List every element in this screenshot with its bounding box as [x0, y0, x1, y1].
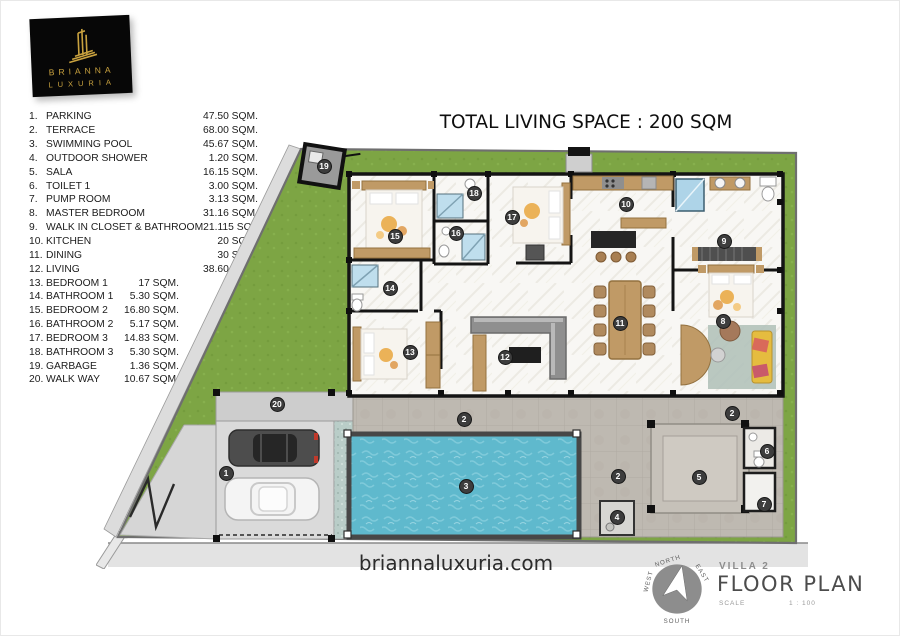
room-marker: 20: [270, 397, 285, 412]
room-marker: 6: [760, 444, 775, 459]
legend-label: WALK WAY: [46, 374, 100, 385]
room-marker: 3: [459, 479, 474, 494]
room-marker: 10: [619, 197, 634, 212]
legend-num: 14.: [29, 291, 46, 302]
legend-num: 11.: [29, 250, 46, 261]
walkway: [216, 392, 353, 421]
legend-num: 6.: [29, 181, 46, 192]
room-marker: 7: [757, 497, 772, 512]
room-marker: 17: [505, 210, 520, 225]
legend-num: 16.: [29, 319, 46, 330]
kitchen-island: [591, 231, 636, 248]
entrance: [566, 147, 592, 172]
scale-label: SCALE: [719, 600, 745, 607]
room-marker: 11: [613, 316, 628, 331]
brand-building-icon: [58, 24, 104, 66]
room-marker: 14: [383, 281, 398, 296]
car-white: [225, 478, 319, 520]
room-marker: 8: [716, 314, 731, 329]
legend-num: 5.: [29, 167, 46, 178]
sala: [647, 420, 749, 513]
page-title: TOTAL LIVING SPACE : 200 SQM: [401, 112, 771, 133]
website-url: briannaluxuria.com: [306, 551, 606, 575]
floor-plan: 122234567891011121314151617181920: [96, 139, 826, 569]
room-marker: 15: [388, 229, 403, 244]
legend-row: 2.TERRACE68.00 SQM.: [29, 124, 258, 138]
title-block: NORTH EAST SOUTH WEST VILLA 2 FLOOR PLAN…: [641, 553, 871, 631]
room-marker: 18: [467, 186, 482, 201]
compass-south-label: SOUTH: [664, 618, 691, 625]
legend-label: KITCHEN: [46, 236, 91, 247]
legend-num: 3.: [29, 139, 46, 150]
brand-name-line1: BRIANNA: [49, 65, 115, 78]
room-marker: 2: [457, 412, 472, 427]
room-marker: 4: [610, 510, 625, 525]
room-marker: 2: [725, 406, 740, 421]
legend-num: 20.: [29, 374, 46, 385]
legend-label: LIVING: [46, 264, 80, 275]
legend-label: SALA: [46, 167, 72, 178]
car-dark: [229, 430, 319, 466]
legend-num: 19.: [29, 361, 46, 372]
legend-num: 1.: [29, 111, 46, 122]
legend-label: GARBAGE: [46, 361, 97, 372]
bed-bedroom1: [353, 322, 440, 388]
legend-num: 12.: [29, 264, 46, 275]
coffee-table: [509, 347, 541, 363]
legend-num: 17.: [29, 333, 46, 344]
legend-label: DINING: [46, 250, 82, 261]
floor-plan-drawing: [96, 139, 826, 569]
brand-logo: BRIANNA LUXURIA: [29, 15, 132, 97]
legend-num: 9.: [29, 222, 46, 233]
room-marker: 9: [717, 234, 732, 249]
legend-row: 1.PARKING47.50 SQM.: [29, 110, 258, 124]
legend-num: 15.: [29, 305, 46, 316]
plan-title: FLOOR PLAN: [717, 572, 864, 596]
legend-label: PARKING: [46, 111, 92, 122]
legend-label: TERRACE: [46, 125, 95, 136]
legend-num: 8.: [29, 208, 46, 219]
room-marker: 12: [498, 350, 513, 365]
brand-name-line2: LUXURIA: [48, 78, 116, 90]
legend-label: TOILET 1: [46, 181, 90, 192]
room-marker: 5: [692, 470, 707, 485]
room-marker: 16: [449, 226, 464, 241]
legend-area: 68.00 SQM.: [203, 125, 258, 136]
legend-num: 10.: [29, 236, 46, 247]
villa-label: VILLA 2: [719, 561, 770, 572]
legend-num: 13.: [29, 278, 46, 289]
room-marker: 19: [317, 159, 332, 174]
room-marker: 2: [611, 469, 626, 484]
room-marker: 13: [403, 345, 418, 360]
legend-area: 47.50 SQM.: [203, 111, 258, 122]
compass-rose-icon: NORTH EAST SOUTH WEST: [641, 553, 713, 625]
page: { "logo": { "line1": "BRIANNA", "line2":…: [0, 0, 900, 636]
scale-value: 1 : 100: [789, 600, 816, 607]
legend-num: 4.: [29, 153, 46, 164]
room-marker: 1: [219, 466, 234, 481]
legend-num: 2.: [29, 125, 46, 136]
legend-num: 7.: [29, 194, 46, 205]
legend-num: 18.: [29, 347, 46, 358]
